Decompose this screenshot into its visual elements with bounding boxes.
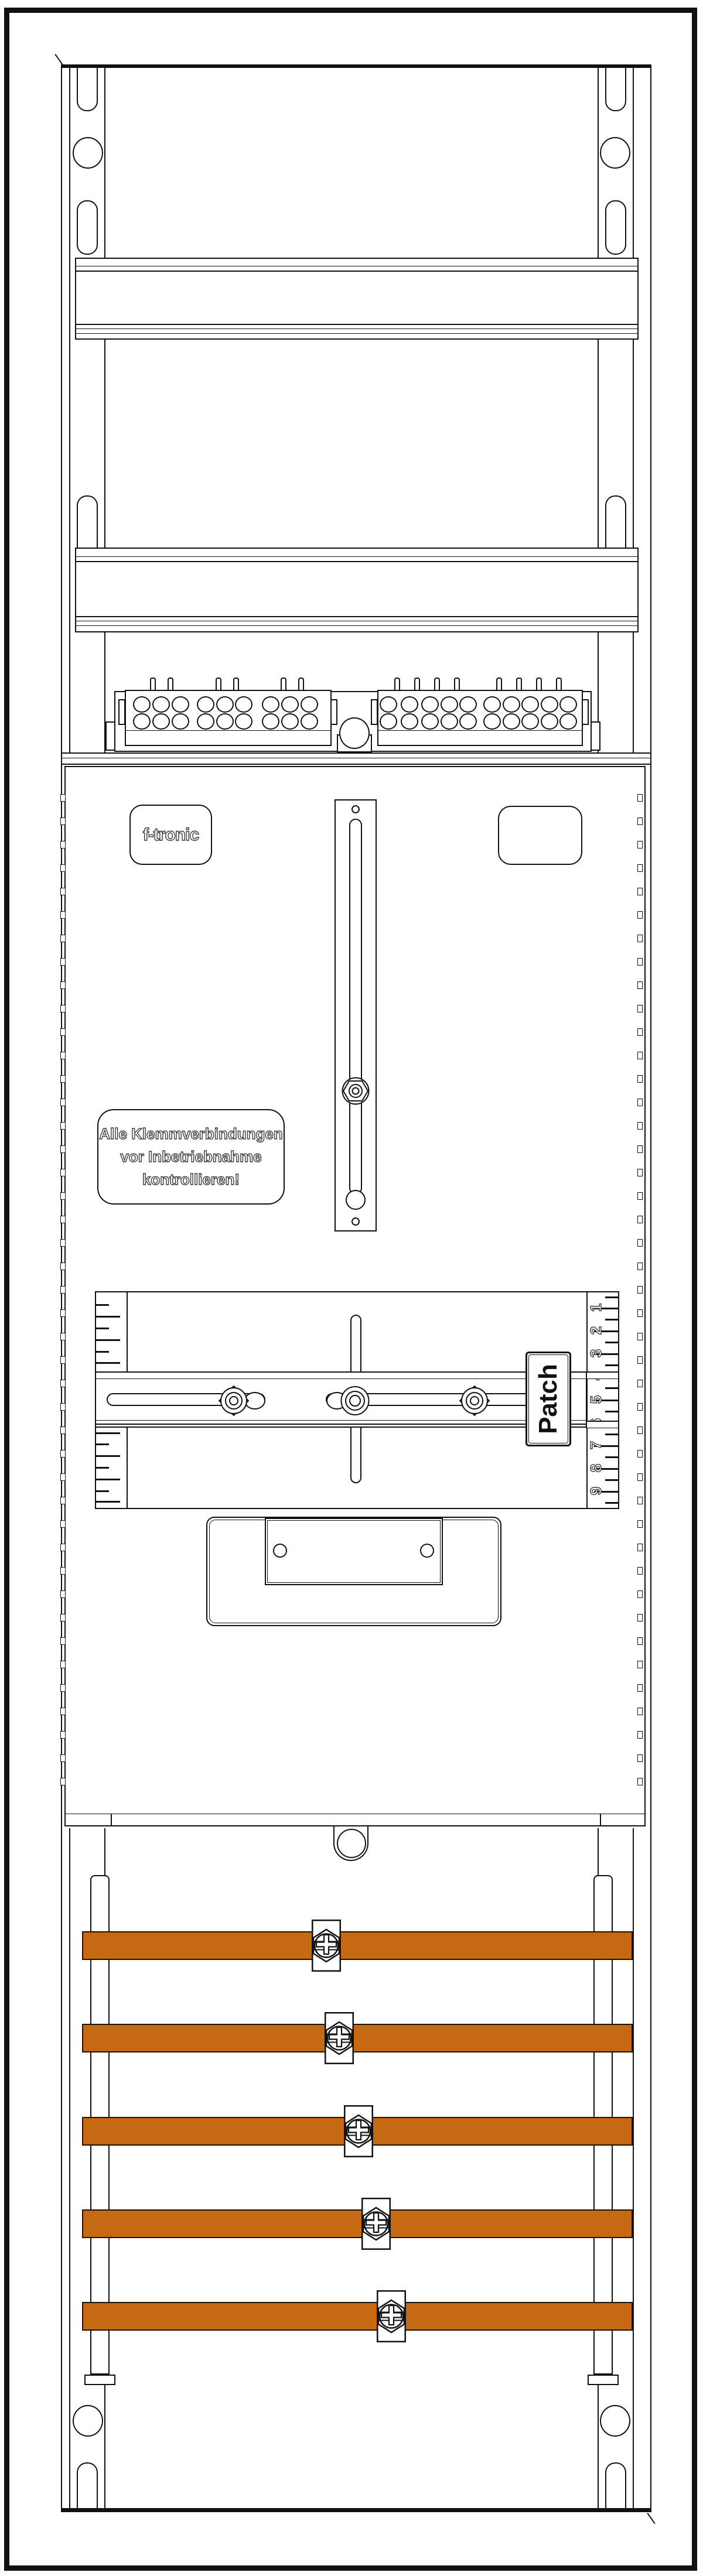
right-ruler-number-text: 3: [588, 1345, 603, 1362]
wall-nub: [637, 1333, 643, 1340]
right-ruler-number-text: 5: [588, 1391, 603, 1408]
rail-slot: [605, 200, 626, 255]
wall-nub: [60, 1333, 66, 1340]
left-ruler-tick: [96, 1362, 120, 1364]
wall-nub: [637, 1567, 643, 1575]
wall-nub: [637, 1684, 643, 1692]
terminal-latch: [330, 699, 337, 725]
right-ruler-tick: [605, 1364, 618, 1366]
terminal-hole: [401, 713, 418, 730]
adjuster-nut-icon: [342, 1077, 370, 1105]
wall-nub: [60, 1661, 66, 1668]
terminal-base-step: [591, 721, 600, 751]
handle-screw-hole: [273, 1544, 287, 1558]
busbar-clamp-screw: [325, 2012, 354, 2064]
wall-nub: [60, 1122, 66, 1130]
wall-nub: [637, 1403, 643, 1411]
terminal-hole: [301, 696, 318, 713]
wall-nub: [60, 794, 66, 802]
wall-nub: [60, 1286, 66, 1294]
left-ruler-tick: [96, 1328, 109, 1329]
terminal-hole: [421, 713, 439, 730]
wall-nub: [637, 1263, 643, 1270]
wall-nub: [60, 1145, 66, 1153]
wall-nub: [60, 958, 66, 966]
wall-nub: [637, 1614, 643, 1621]
left-ruler-tick: [96, 1443, 109, 1445]
wall-nub: [637, 1426, 643, 1434]
right-ruler-number: 8: [587, 1460, 605, 1476]
terminal-hole: [521, 696, 539, 713]
divider-mark: [111, 1814, 112, 1826]
divider-line: [61, 752, 651, 754]
brand-logo-plate: f-tronic: [129, 805, 212, 865]
terminal-hole: [541, 713, 558, 730]
terminal-latch: [371, 699, 378, 725]
wall-nub: [637, 958, 643, 966]
right-ruler-tick: [605, 1342, 618, 1343]
terminal-hole: [133, 696, 151, 713]
wall-nub: [637, 935, 643, 942]
patch-label: Patch: [525, 1352, 571, 1446]
fixing-screw-icon: [459, 1386, 490, 1416]
wall-nub: [637, 817, 643, 825]
terminal-hole: [235, 696, 252, 713]
terminal-base-step: [105, 721, 115, 751]
wall-nub: [60, 1426, 66, 1434]
terminal-tab: [298, 678, 304, 691]
wall-nub: [60, 1450, 66, 1458]
rail-hole-oval: [600, 2405, 630, 2437]
side-rail-top-right: [598, 68, 634, 752]
terminal-tab: [150, 678, 156, 691]
terminal-hole: [216, 696, 234, 713]
wall-nub: [637, 1192, 643, 1200]
busbar: [82, 2209, 633, 2238]
left-ruler-tick: [96, 1479, 120, 1480]
left-ruler-tick: [96, 1339, 120, 1341]
wall-nub: [637, 1590, 643, 1598]
terminal-tab: [281, 678, 286, 691]
meter-cabinet-drawing: f-tronic Alle Klemmverbindungen vor Inbe…: [0, 0, 703, 2576]
left-ruler-tick: [96, 1455, 120, 1457]
busbar: [82, 1931, 633, 1960]
wall-nub: [60, 1544, 66, 1551]
wall-nub: [637, 1169, 643, 1176]
right-ruler-number-text: 8: [588, 1459, 603, 1477]
right-ruler-number: 3: [587, 1346, 605, 1361]
terminal-tab: [556, 678, 562, 691]
right-ruler-number-text: 2: [588, 1322, 603, 1339]
wall-nub: [60, 1216, 66, 1223]
busbar: [82, 2024, 633, 2052]
brand-logo-text: f-tronic: [143, 825, 199, 845]
wall-nub: [637, 1520, 643, 1528]
terminal-hole: [152, 696, 170, 713]
terminal-hole: [503, 713, 520, 730]
right-ruler-tick: [605, 1456, 618, 1458]
left-ruler-tick: [96, 1351, 109, 1353]
wall-nub: [637, 1778, 643, 1785]
panel-bottom-knockout: [337, 1829, 366, 1858]
divider-line: [61, 764, 651, 765]
warning-label: Alle Klemmverbindungen vor Inbetriebnahm…: [97, 1109, 285, 1205]
terminal-hole: [301, 713, 318, 730]
wall-nub: [637, 794, 643, 802]
handle-screw-hole: [420, 1544, 434, 1558]
terminal-hole: [172, 713, 189, 730]
wall-nub: [637, 1708, 643, 1715]
wall-nub: [637, 1380, 643, 1387]
left-ruler-tick: [96, 1501, 120, 1503]
wall-nub: [637, 1239, 643, 1247]
busbar-clamp-screw: [361, 2198, 391, 2250]
wall-nub: [637, 1450, 643, 1458]
wall-nub: [60, 1497, 66, 1504]
terminal-tab: [394, 678, 400, 691]
wall-nub: [60, 1590, 66, 1598]
terminal-hole: [216, 713, 234, 730]
wall-nub: [60, 1520, 66, 1528]
wall-nub: [60, 817, 66, 825]
terminal-latch: [582, 699, 589, 725]
right-ruler-number-text: 1: [588, 1299, 603, 1316]
right-ruler-tick: [605, 1319, 618, 1321]
wall-nub: [637, 911, 643, 919]
terminal-tab: [536, 678, 542, 691]
wall-nub: [60, 1169, 66, 1176]
wall-nub: [637, 1052, 643, 1059]
terminal-tab: [168, 678, 173, 691]
terminal-hole: [459, 696, 477, 713]
terminal-hole: [441, 713, 458, 730]
terminal-hole: [262, 696, 279, 713]
center-grommet-icon: [340, 1386, 370, 1415]
wall-nub: [637, 841, 643, 849]
wall-nub: [60, 1778, 66, 1785]
wall-nub: [60, 1614, 66, 1621]
adjustment-rail-extension: [586, 1421, 619, 1428]
rail-slot: [77, 67, 98, 111]
din-rail-2: [75, 548, 639, 632]
divider-line: [61, 758, 651, 758]
terminal-hole: [235, 713, 252, 730]
adjuster-slot: [349, 819, 362, 1195]
wall-nub: [60, 1567, 66, 1575]
handle-recess-inner-line: [267, 1520, 441, 1583]
terminal-hole: [401, 696, 418, 713]
wall-nub: [60, 1684, 66, 1692]
wall-nub: [637, 888, 643, 895]
wall-nub: [637, 1145, 643, 1153]
wall-nub: [60, 935, 66, 942]
terminal-hole: [262, 713, 279, 730]
right-ruler-tick: [605, 1411, 618, 1412]
terminal-tab: [434, 678, 440, 691]
wall-nub: [637, 864, 643, 872]
wall-nub: [60, 981, 66, 989]
adjuster-slot-end: [346, 1190, 366, 1210]
wall-nub: [637, 1473, 643, 1481]
divider-mark: [600, 1814, 601, 1826]
wall-nub: [637, 1731, 643, 1739]
fixing-screw-icon: [219, 1386, 249, 1416]
terminal-hole: [133, 713, 151, 730]
terminal-hole: [503, 696, 520, 713]
right-ruler-number: 2: [587, 1323, 605, 1338]
wall-nub: [60, 1263, 66, 1270]
wall-nub: [637, 1754, 643, 1762]
wall-nub: [60, 1637, 66, 1645]
terminal-hole: [559, 696, 577, 713]
right-ruler-number-text: 7: [588, 1436, 603, 1454]
rail-slot: [605, 495, 626, 548]
right-ruler-number: 7: [587, 1438, 605, 1453]
terminal-hole: [172, 696, 189, 713]
terminal-tab: [216, 678, 221, 691]
wall-nub: [60, 1052, 66, 1059]
rail-slot: [77, 2462, 98, 2509]
terminal-hole: [459, 713, 477, 730]
warning-text-line: vor Inbetriebnahme: [120, 1145, 261, 1168]
wall-nub: [60, 1754, 66, 1762]
adjustment-rail-extension: [586, 1371, 619, 1379]
busbar-support-foot: [588, 2375, 619, 2385]
wall-nub: [60, 1356, 66, 1364]
rail-hole-oval: [73, 2405, 103, 2437]
wall-nub: [60, 1028, 66, 1036]
terminal-hole: [541, 696, 558, 713]
rail-hole-oval: [73, 137, 103, 169]
wall-nub: [637, 1005, 643, 1012]
wall-nub: [60, 1473, 66, 1481]
wall-nub: [60, 1192, 66, 1200]
right-ruler-number: 5: [587, 1392, 605, 1407]
terminal-hole: [380, 713, 397, 730]
terminal-latch: [118, 699, 125, 725]
center-knockout-circle: [339, 717, 370, 749]
terminal-hole: [421, 696, 439, 713]
patch-label-text: Patch: [534, 1364, 563, 1434]
busbar-support-foot: [84, 2375, 115, 2385]
wall-nub: [60, 1309, 66, 1317]
wall-nub: [637, 1028, 643, 1036]
wall-nub: [637, 1661, 643, 1668]
rail-slot: [605, 67, 626, 111]
adjuster-hole: [351, 805, 360, 813]
wall-nub: [60, 1380, 66, 1387]
right-ruler-number: 1: [587, 1300, 605, 1315]
wall-nub: [60, 864, 66, 872]
left-ruler-tick: [96, 1316, 120, 1318]
terminal-hole: [197, 713, 214, 730]
wall-nub: [637, 1099, 643, 1106]
right-ruler-number: 9: [587, 1483, 605, 1499]
side-rail-top-left: [69, 68, 105, 752]
wall-nub: [637, 981, 643, 989]
warning-text-line: Alle Klemmverbindungen: [99, 1123, 283, 1145]
busbar-clamp-screw: [377, 2290, 406, 2342]
wall-nub: [60, 1075, 66, 1083]
wall-nub: [60, 888, 66, 895]
terminal-hole: [521, 713, 539, 730]
wall-nub: [637, 1497, 643, 1504]
terminal-hole: [483, 713, 501, 730]
wall-nub: [60, 1005, 66, 1012]
din-rail-1: [75, 258, 639, 340]
left-ruler-tick: [96, 1304, 109, 1306]
wall-nub: [60, 1731, 66, 1739]
blank-plate: [498, 806, 582, 865]
busbar-clamp-screw: [312, 1920, 341, 1972]
terminal-tab: [233, 678, 239, 691]
right-ruler-tick: [605, 1296, 618, 1298]
terminal-tab: [496, 678, 502, 691]
right-ruler-tick: [605, 1387, 618, 1389]
busbar-clamp-screw: [344, 2105, 373, 2157]
terminal-hole: [281, 696, 299, 713]
right-ruler-tick: [605, 1434, 618, 1435]
terminal-hole: [197, 696, 214, 713]
wall-nub: [637, 1075, 643, 1083]
terminal-hole: [152, 713, 170, 730]
wall-nub: [637, 1216, 643, 1223]
adjuster-hole: [351, 1217, 360, 1226]
rail-slot: [77, 200, 98, 255]
terminal-hole: [483, 696, 501, 713]
terminal-hole: [441, 696, 458, 713]
wall-nub: [637, 1356, 643, 1364]
wall-nub: [60, 911, 66, 919]
right-ruler-tick: [605, 1479, 618, 1481]
left-ruler-tick: [96, 1490, 109, 1492]
wall-nub: [637, 1286, 643, 1294]
wall-nub: [60, 1239, 66, 1247]
left-ruler-tick: [96, 1467, 109, 1469]
wall-nub: [60, 841, 66, 849]
terminal-tab: [516, 678, 522, 691]
warning-text-line: kontrollieren!: [142, 1168, 240, 1191]
wall-nub: [637, 1637, 643, 1645]
wall-nub: [637, 1122, 643, 1130]
terminal-hole: [380, 696, 397, 713]
wall-nub: [60, 1099, 66, 1106]
rail-slot: [605, 2462, 626, 2509]
terminal-tab: [414, 678, 420, 691]
terminal-hole: [559, 713, 577, 730]
busbar: [82, 2302, 633, 2331]
right-ruler-tick: [605, 1502, 618, 1504]
right-ruler-number-text: 9: [588, 1482, 603, 1500]
wall-nub: [637, 1309, 643, 1317]
terminal-tab: [454, 678, 460, 691]
left-ruler-tick: [96, 1432, 120, 1434]
rail-slot: [77, 495, 98, 548]
wall-nub: [60, 1403, 66, 1411]
wall-nub: [60, 1708, 66, 1715]
terminal-hole: [281, 713, 299, 730]
wall-nub: [637, 1544, 643, 1551]
rail-hole-oval: [600, 137, 630, 169]
